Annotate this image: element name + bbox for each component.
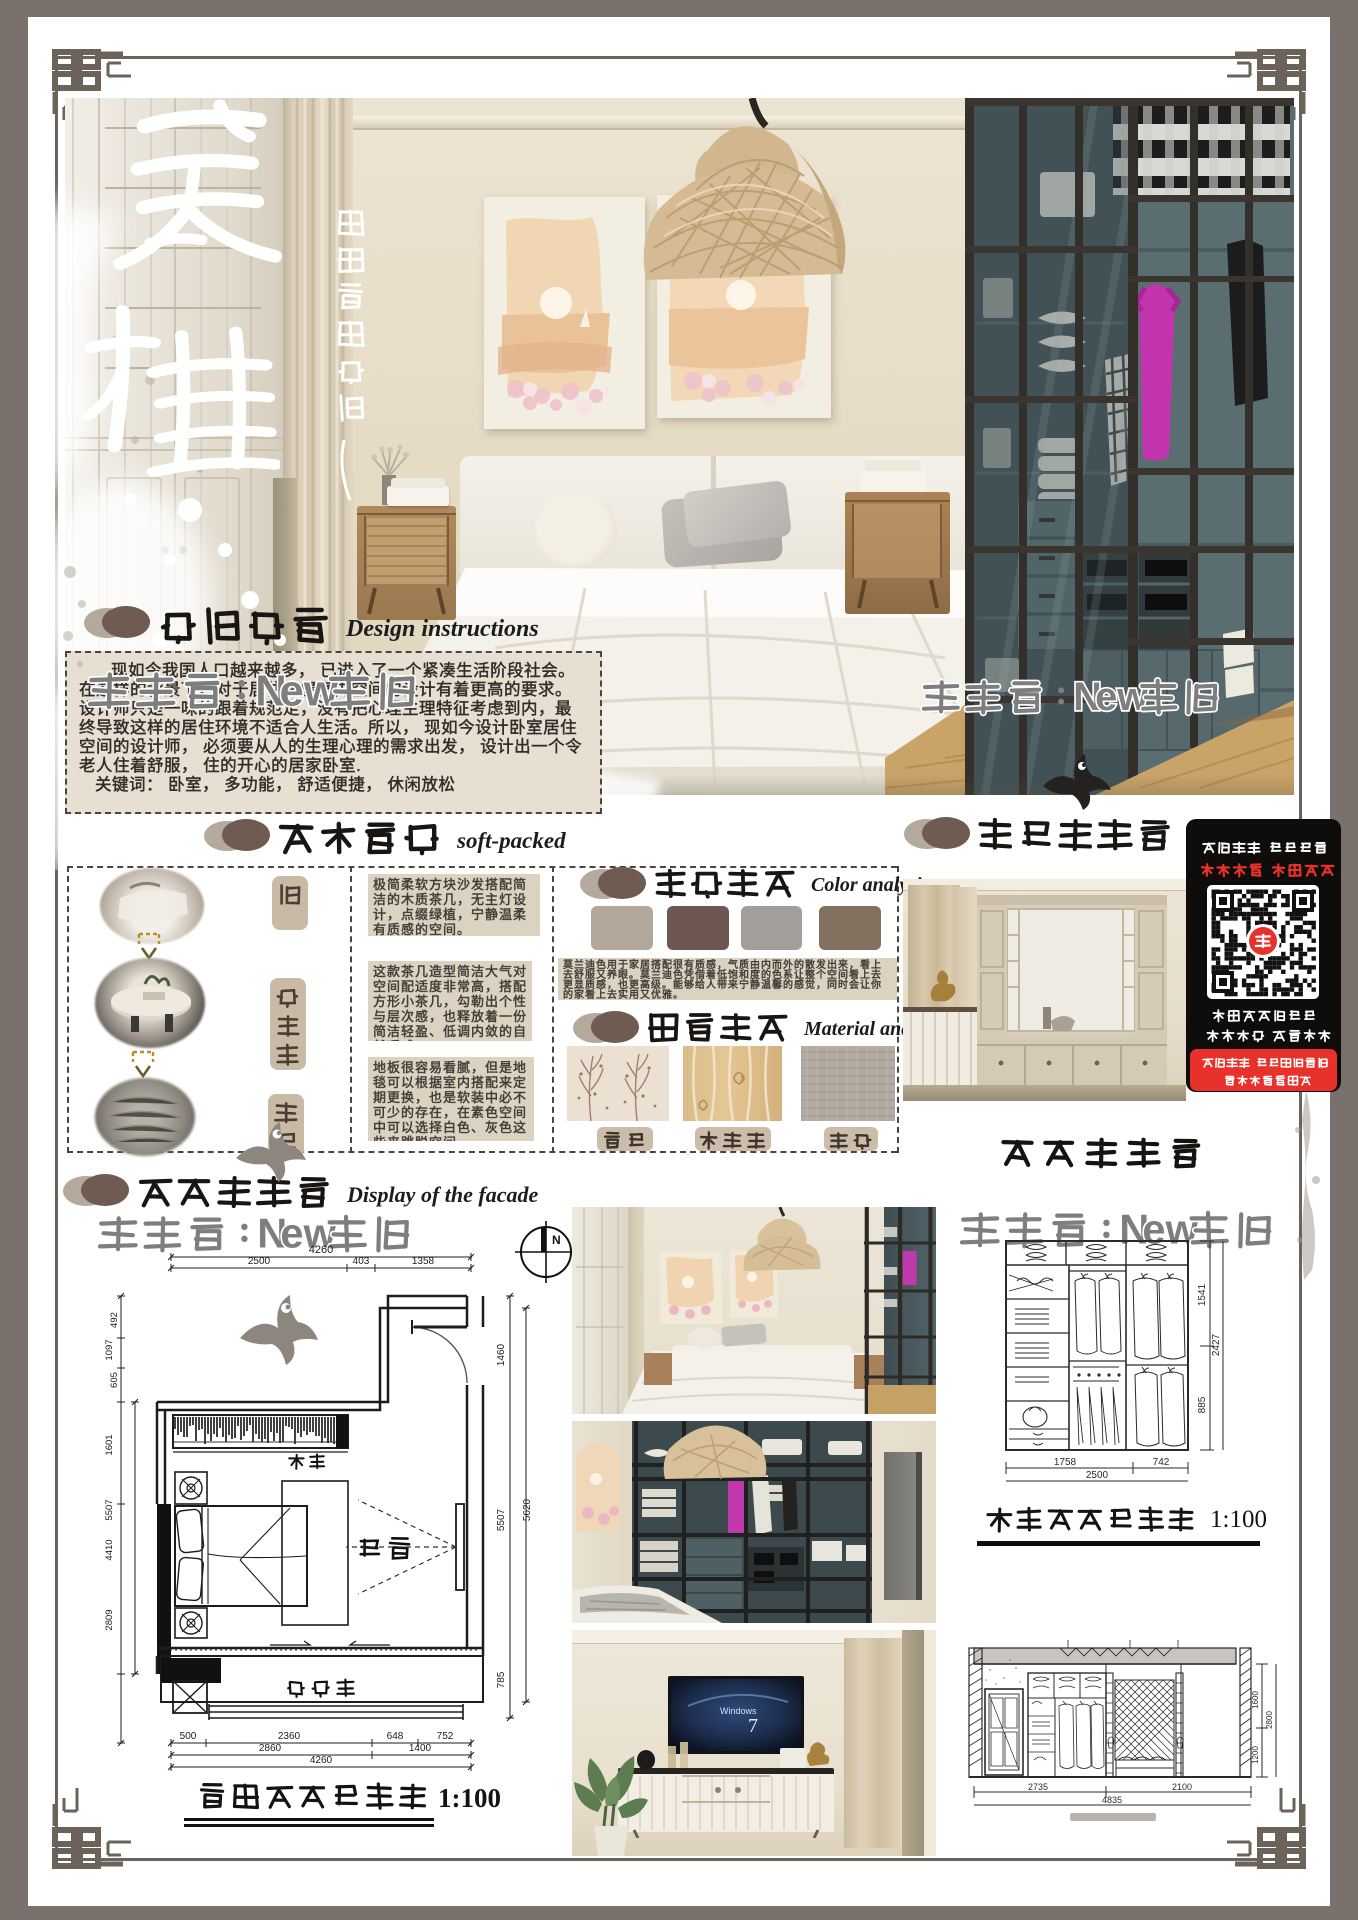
svg-text:4410: 4410 bbox=[104, 1539, 115, 1560]
svg-text:492: 492 bbox=[109, 1312, 120, 1328]
svg-text:2800: 2800 bbox=[1265, 1711, 1274, 1729]
svg-text:7: 7 bbox=[748, 1715, 758, 1737]
svg-text:403: 403 bbox=[353, 1256, 370, 1267]
svg-text:1200: 1200 bbox=[1251, 1746, 1260, 1764]
svg-text:5620: 5620 bbox=[522, 1498, 533, 1521]
svg-text:1358: 1358 bbox=[412, 1256, 435, 1267]
svg-text:742: 742 bbox=[1153, 1457, 1170, 1468]
svg-text:885: 885 bbox=[1197, 1396, 1208, 1413]
svg-text:e: e bbox=[280, 666, 304, 715]
svg-text:N: N bbox=[552, 1233, 561, 1247]
svg-text:2860: 2860 bbox=[259, 1743, 282, 1754]
svg-text:e: e bbox=[1095, 675, 1117, 719]
svg-text:5507: 5507 bbox=[496, 1508, 507, 1531]
svg-text:5507: 5507 bbox=[104, 1499, 115, 1520]
svg-text:752: 752 bbox=[437, 1731, 454, 1742]
svg-text:2427: 2427 bbox=[1211, 1333, 1222, 1356]
svg-text:1400: 1400 bbox=[409, 1743, 432, 1754]
svg-text:1460: 1460 bbox=[496, 1343, 507, 1366]
svg-text:1600: 1600 bbox=[1251, 1691, 1260, 1709]
svg-text:4260: 4260 bbox=[309, 1244, 333, 1256]
svg-text:2500: 2500 bbox=[248, 1256, 271, 1267]
svg-text:2809: 2809 bbox=[104, 1609, 115, 1630]
svg-text:1601: 1601 bbox=[104, 1434, 115, 1455]
svg-text:648: 648 bbox=[387, 1731, 404, 1742]
svg-text:2100: 2100 bbox=[1172, 1782, 1192, 1792]
svg-text:2500: 2500 bbox=[1086, 1470, 1109, 1481]
svg-text:4260: 4260 bbox=[310, 1755, 333, 1766]
svg-text:2360: 2360 bbox=[278, 1731, 301, 1742]
svg-text:2735: 2735 bbox=[1028, 1782, 1048, 1792]
svg-text:1541: 1541 bbox=[1197, 1283, 1208, 1306]
svg-text:500: 500 bbox=[180, 1731, 197, 1742]
svg-text:4835: 4835 bbox=[1102, 1795, 1122, 1805]
svg-text:785: 785 bbox=[496, 1671, 507, 1688]
svg-text:1097: 1097 bbox=[104, 1339, 115, 1360]
svg-text:605: 605 bbox=[109, 1372, 120, 1388]
svg-text:1758: 1758 bbox=[1054, 1457, 1077, 1468]
